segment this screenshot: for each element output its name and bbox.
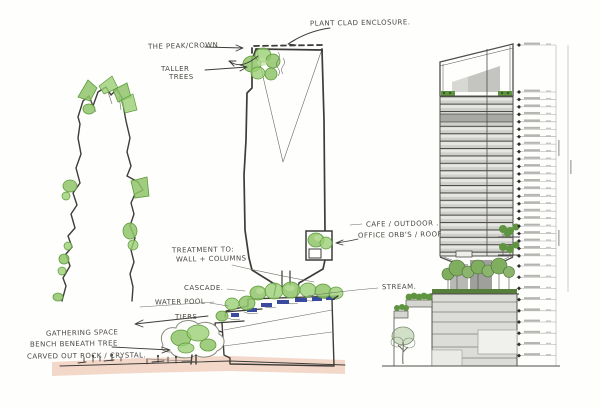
crown-trees (243, 48, 285, 80)
rock-foliage (53, 76, 149, 301)
elevation-drawing (382, 43, 572, 366)
cafe-orb-notch (306, 231, 332, 260)
annotation-office-orbs-roof: OFFICE ORB'S / ROOF (358, 230, 442, 239)
rock-pillar-sketch (53, 76, 149, 301)
podium-elevation (432, 294, 517, 366)
sketch-page: PLANT CLAD ENCLOSURE. THE PEAK/CROWN TAL… (0, 0, 600, 408)
annotation-taller-trees-line1: TALLER (161, 65, 189, 73)
annotation-tiers: TIERS (175, 313, 197, 321)
annotation-cafe-outdoor: CAFE / OUTDOOR . (366, 219, 439, 228)
annotation-cascade: CASCADE. (184, 284, 223, 292)
podium-roof-garden (430, 258, 519, 294)
annotation-water-pool: WATER POOL (155, 298, 205, 307)
crown-planting-right (498, 91, 512, 96)
annotation-carved-out-rock: CARVED OUT ROCK / CRYSTAL. (27, 351, 146, 360)
elevation-ground-tree (391, 327, 415, 364)
podium-sketch (222, 296, 338, 366)
floor-level-markers (516, 43, 556, 358)
annotation-gathering-space: GATHERING SPACE (46, 328, 119, 338)
annotation-treatment-line1: TREATMENT TO: (172, 245, 234, 254)
annotation-taller-trees-line2: TREES (169, 73, 194, 81)
annotation-plant-clad-enclosure: PLANT CLAD ENCLOSURE. (310, 18, 411, 27)
annotation-stream: STREAM. (382, 283, 416, 292)
annotation-treatment-line2: WALL + COLUMNS (176, 254, 247, 263)
concept-tower-sketch (60, 45, 345, 366)
annotation-bench-beneath-tree: BENCH BENEATH TREE (30, 339, 118, 348)
